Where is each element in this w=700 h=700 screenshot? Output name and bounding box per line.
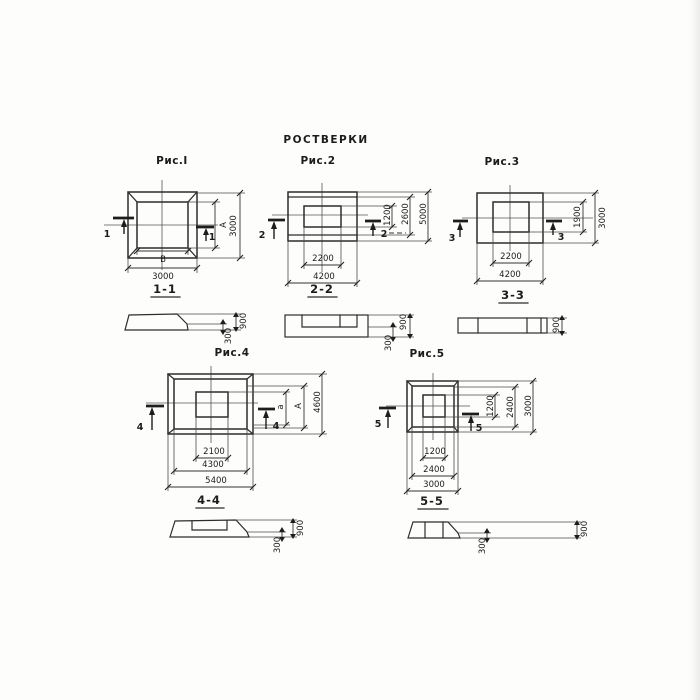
fig4-dim-outer-width: 5400 bbox=[205, 476, 227, 486]
fig5-cut-number-right: 5 bbox=[476, 423, 483, 434]
fig4-cut-number-right: 4 bbox=[273, 421, 280, 432]
section1-ledge-height: 300 bbox=[224, 328, 234, 344]
fig1-cut-number-left: 1 bbox=[104, 229, 111, 240]
fig5-section-name: 5-5 bbox=[420, 494, 444, 508]
fig5-dim-mid-height: 2400 bbox=[506, 396, 516, 418]
fig4-dim-mid-width: 4300 bbox=[202, 460, 224, 470]
section3-total-height: 900 bbox=[552, 317, 562, 333]
fig3-cut-number-right: 3 bbox=[558, 232, 565, 243]
fig5-dim-inner-width: 1200 bbox=[424, 447, 446, 457]
fig3-dim-inner-width: 2200 bbox=[500, 252, 522, 262]
fig4-cut-number-left: 4 bbox=[137, 422, 144, 433]
fig2-section-name: 2-2 bbox=[310, 282, 334, 296]
fig2-dim-inner-width: 2200 bbox=[312, 254, 334, 264]
fig5-dim-inner-height: 1200 bbox=[486, 395, 496, 417]
fig1-section-name: 1-1 bbox=[153, 282, 177, 296]
fig2-dim-outer-width: 4200 bbox=[313, 272, 335, 282]
fig1-dim-outer-height: 3000 bbox=[229, 215, 239, 237]
fig3-caption: Рис.3 bbox=[484, 156, 519, 168]
fig4-section-name: 4-4 bbox=[197, 493, 221, 507]
fig4-caption: Рис.4 bbox=[214, 347, 249, 359]
fig4-dim-mid-height: А bbox=[294, 403, 304, 409]
fig3-dim-inner-height: 1900 bbox=[573, 206, 583, 228]
fig1-dim-inner-width: В bbox=[160, 255, 166, 265]
fig2-caption: Рис.2 bbox=[300, 155, 335, 167]
fig4-dim-inner-width: 2100 bbox=[203, 447, 225, 457]
fig2-dim-inner-height: 1200 bbox=[383, 204, 393, 226]
fig5-dim-outer-width: 3000 bbox=[423, 480, 445, 490]
fig3-cut-number-left: 3 bbox=[449, 233, 456, 244]
fig5-caption: Рис.5 bbox=[409, 348, 444, 360]
fig4-dim-outer-height: 4600 bbox=[313, 391, 323, 413]
scanned-drawing-sheet: РОСТВЕРКИ Рис.I А 3000 В bbox=[0, 0, 700, 700]
fig2-dim-mid-height: 2600 bbox=[401, 203, 411, 225]
section4-ledge-height: 300 bbox=[273, 537, 283, 553]
section5-ledge-height: 300 bbox=[478, 538, 488, 554]
fig4-dim-inner-height: а bbox=[276, 404, 286, 409]
section1-total-height: 900 bbox=[239, 313, 249, 329]
section2-ledge-height: 300 bbox=[384, 335, 394, 351]
fig2-cut-number-right: 2 bbox=[381, 229, 388, 240]
fig2-cut-number-left: 2 bbox=[259, 230, 266, 241]
fig1-dim-inner-height: А bbox=[219, 222, 229, 228]
paper-background bbox=[0, 0, 700, 700]
grillage-drawing: РОСТВЕРКИ Рис.I А 3000 В bbox=[0, 0, 700, 700]
fig1-caption: Рис.I bbox=[156, 155, 188, 167]
fig1-cut-number-right: 1 bbox=[209, 232, 216, 243]
section4-total-height: 900 bbox=[296, 520, 306, 536]
fig5-cut-number-left: 5 bbox=[375, 419, 382, 430]
fig3-section-name: 3-3 bbox=[501, 288, 525, 302]
section5-total-height: 900 bbox=[580, 521, 590, 537]
fig3-dim-outer-height: 3000 bbox=[598, 207, 608, 229]
fig5-dim-outer-height: 3000 bbox=[524, 395, 534, 417]
fig1-dim-outer-width: 3000 bbox=[152, 272, 174, 282]
fig5-dim-mid-width: 2400 bbox=[423, 465, 445, 475]
sheet-title: РОСТВЕРКИ bbox=[283, 134, 368, 146]
fig3-dim-outer-width: 4200 bbox=[499, 270, 521, 280]
section2-total-height: 900 bbox=[399, 314, 409, 330]
fig2-dim-outer-height: 5000 bbox=[419, 203, 429, 225]
